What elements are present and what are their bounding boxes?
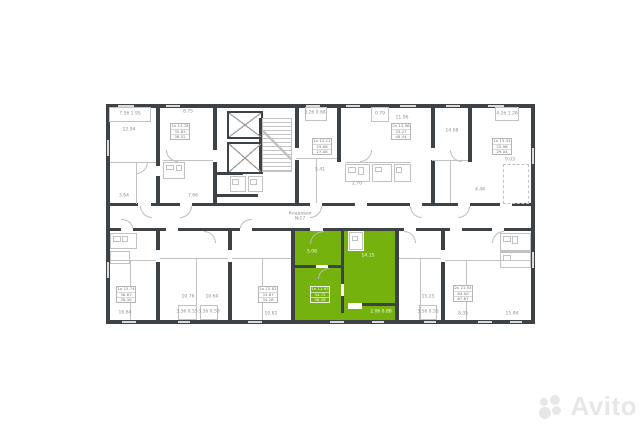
fixture	[166, 165, 174, 170]
fixture	[176, 165, 182, 171]
avito-logo-circle	[539, 407, 551, 419]
room-label: 10.60	[206, 294, 219, 299]
fixture	[503, 236, 511, 242]
fixture	[232, 179, 239, 185]
unit-stat-box: 1к 12.1125.0627.06	[312, 138, 332, 155]
wall-gap	[240, 228, 252, 231]
unit-stat-box: 2к 13.9633.2748.44	[391, 123, 411, 140]
room-label: 4.2б 1.28	[496, 111, 517, 116]
avito-watermark: Avito	[539, 391, 637, 422]
wall-gap	[213, 150, 217, 162]
wall-gap	[228, 250, 232, 262]
partition	[345, 162, 411, 163]
room-label: 9.03	[505, 157, 515, 162]
room-label: 10.82	[265, 311, 278, 316]
unit-stat-box: 1к 11.9334.7236.28	[310, 286, 330, 303]
room-label: 16.64	[119, 310, 132, 315]
door-arc	[492, 231, 504, 243]
window-mark	[346, 105, 360, 107]
wall	[106, 104, 110, 324]
window-mark	[532, 252, 534, 268]
wall-gap	[431, 148, 435, 160]
wall-gap	[341, 284, 344, 296]
window-mark	[107, 140, 109, 156]
wall	[228, 231, 232, 321]
fixture	[512, 236, 518, 244]
avito-watermark-text: Avito	[570, 391, 637, 422]
door-arc	[180, 206, 192, 218]
room-label: 2.0б 0.88	[370, 309, 391, 314]
room-label: №17	[295, 216, 305, 221]
window-mark	[424, 321, 436, 323]
door-arc	[360, 150, 372, 162]
wall	[468, 104, 472, 162]
fixture	[352, 236, 358, 241]
room-label: 4.48	[475, 187, 485, 192]
fixture-box	[349, 232, 363, 250]
fixture	[250, 179, 257, 185]
partition	[160, 258, 228, 259]
window-mark	[400, 105, 416, 107]
wall	[213, 194, 258, 197]
window-mark	[478, 321, 492, 323]
partition	[450, 160, 451, 203]
door-arc	[204, 231, 216, 243]
door-arc	[404, 231, 416, 243]
floor-plan: 7.5б 1.9512.948.753.2б 0.680.794.2б 1.28…	[0, 0, 640, 431]
door-arc	[140, 206, 152, 218]
room-label: 8.35	[458, 311, 468, 316]
fixture	[396, 167, 402, 173]
avito-logo-circle	[550, 395, 560, 405]
fixture	[113, 236, 121, 242]
room-label: 12.94	[123, 127, 136, 132]
door-arc	[121, 219, 133, 228]
room-label: 8.75	[183, 109, 193, 114]
avito-logo-icon	[539, 395, 565, 419]
unit-stat-box: 1к 15.8233.6734.26	[258, 286, 278, 303]
fixture	[375, 167, 382, 172]
window-mark	[122, 321, 136, 323]
window-mark	[166, 105, 180, 107]
window-mark	[532, 148, 534, 164]
wall	[341, 231, 344, 269]
fixture-box	[110, 251, 130, 264]
door-arc	[136, 162, 148, 174]
wall-gap	[156, 250, 160, 262]
unit-stat-box: 1к 15.7436.8738.30	[116, 286, 136, 303]
unit-stat-box: 1к 13.7835.8338.52	[170, 123, 190, 140]
room-label: 5.41	[315, 167, 325, 172]
dashed-outline	[503, 164, 529, 204]
fixture	[348, 167, 356, 173]
wall	[360, 303, 398, 306]
room-label: 7.5б 1.95	[119, 111, 140, 116]
wall-gap	[121, 228, 133, 231]
green-area	[295, 231, 395, 321]
unit-stat-box: 1к 13.3525.9629.04	[492, 138, 512, 155]
wall	[156, 104, 160, 166]
staircase-icon	[262, 118, 292, 172]
wall-gap	[450, 228, 462, 231]
wall-gap	[348, 303, 362, 309]
door-arc	[240, 219, 252, 228]
wall	[337, 104, 341, 162]
wall-gap	[166, 228, 178, 231]
window-mark	[248, 321, 262, 323]
fixture	[122, 236, 128, 242]
room-label: 3.5б 0.55	[417, 309, 438, 314]
elevator-shaft-icon	[227, 111, 263, 139]
room-label: 14.68	[446, 128, 459, 133]
partition	[316, 158, 317, 203]
wall	[156, 176, 160, 206]
room-label: 14.15	[362, 253, 375, 258]
door-arc	[458, 206, 470, 218]
room-label: 2.70	[352, 181, 362, 186]
avito-logo-circle	[540, 398, 548, 406]
room-label: 5.08	[307, 249, 317, 254]
window-mark	[107, 262, 109, 278]
fixture	[503, 255, 511, 261]
wall-gap	[355, 203, 367, 206]
room-label: 15.84	[506, 311, 519, 316]
unit-stat-box: 2к 21.5564.0067.67	[453, 285, 473, 302]
fixture	[358, 167, 364, 175]
window-mark	[178, 321, 190, 323]
room-label: 3.5б 0.58	[198, 309, 219, 314]
room-label: 3.64	[119, 193, 129, 198]
room-label: 3.2б 0.68	[304, 110, 325, 115]
room-label: 0.79	[375, 111, 385, 116]
wall	[441, 231, 445, 321]
wall	[531, 104, 535, 324]
room-label: 3.5б 0.55	[176, 309, 197, 314]
room-label: 15.25	[422, 294, 435, 299]
wall	[395, 231, 399, 321]
partition	[110, 162, 156, 163]
floor-plan-page: 7.5б 1.9512.948.753.2б 0.680.794.2б 1.28…	[0, 0, 640, 431]
wall	[106, 320, 535, 324]
wall	[291, 231, 295, 321]
window-mark	[372, 321, 384, 323]
avito-logo-circle	[552, 406, 561, 415]
window-mark	[330, 321, 344, 323]
room-label: 10.76	[182, 294, 195, 299]
door-arc	[410, 206, 422, 218]
room-label: 7.66	[188, 193, 198, 198]
elevator-shaft-icon	[227, 142, 263, 174]
partition	[163, 160, 213, 161]
wall	[156, 231, 160, 321]
window-mark	[510, 321, 522, 323]
window-mark	[446, 105, 460, 107]
room-label: 11.96	[396, 115, 409, 120]
door-arc	[310, 206, 322, 218]
